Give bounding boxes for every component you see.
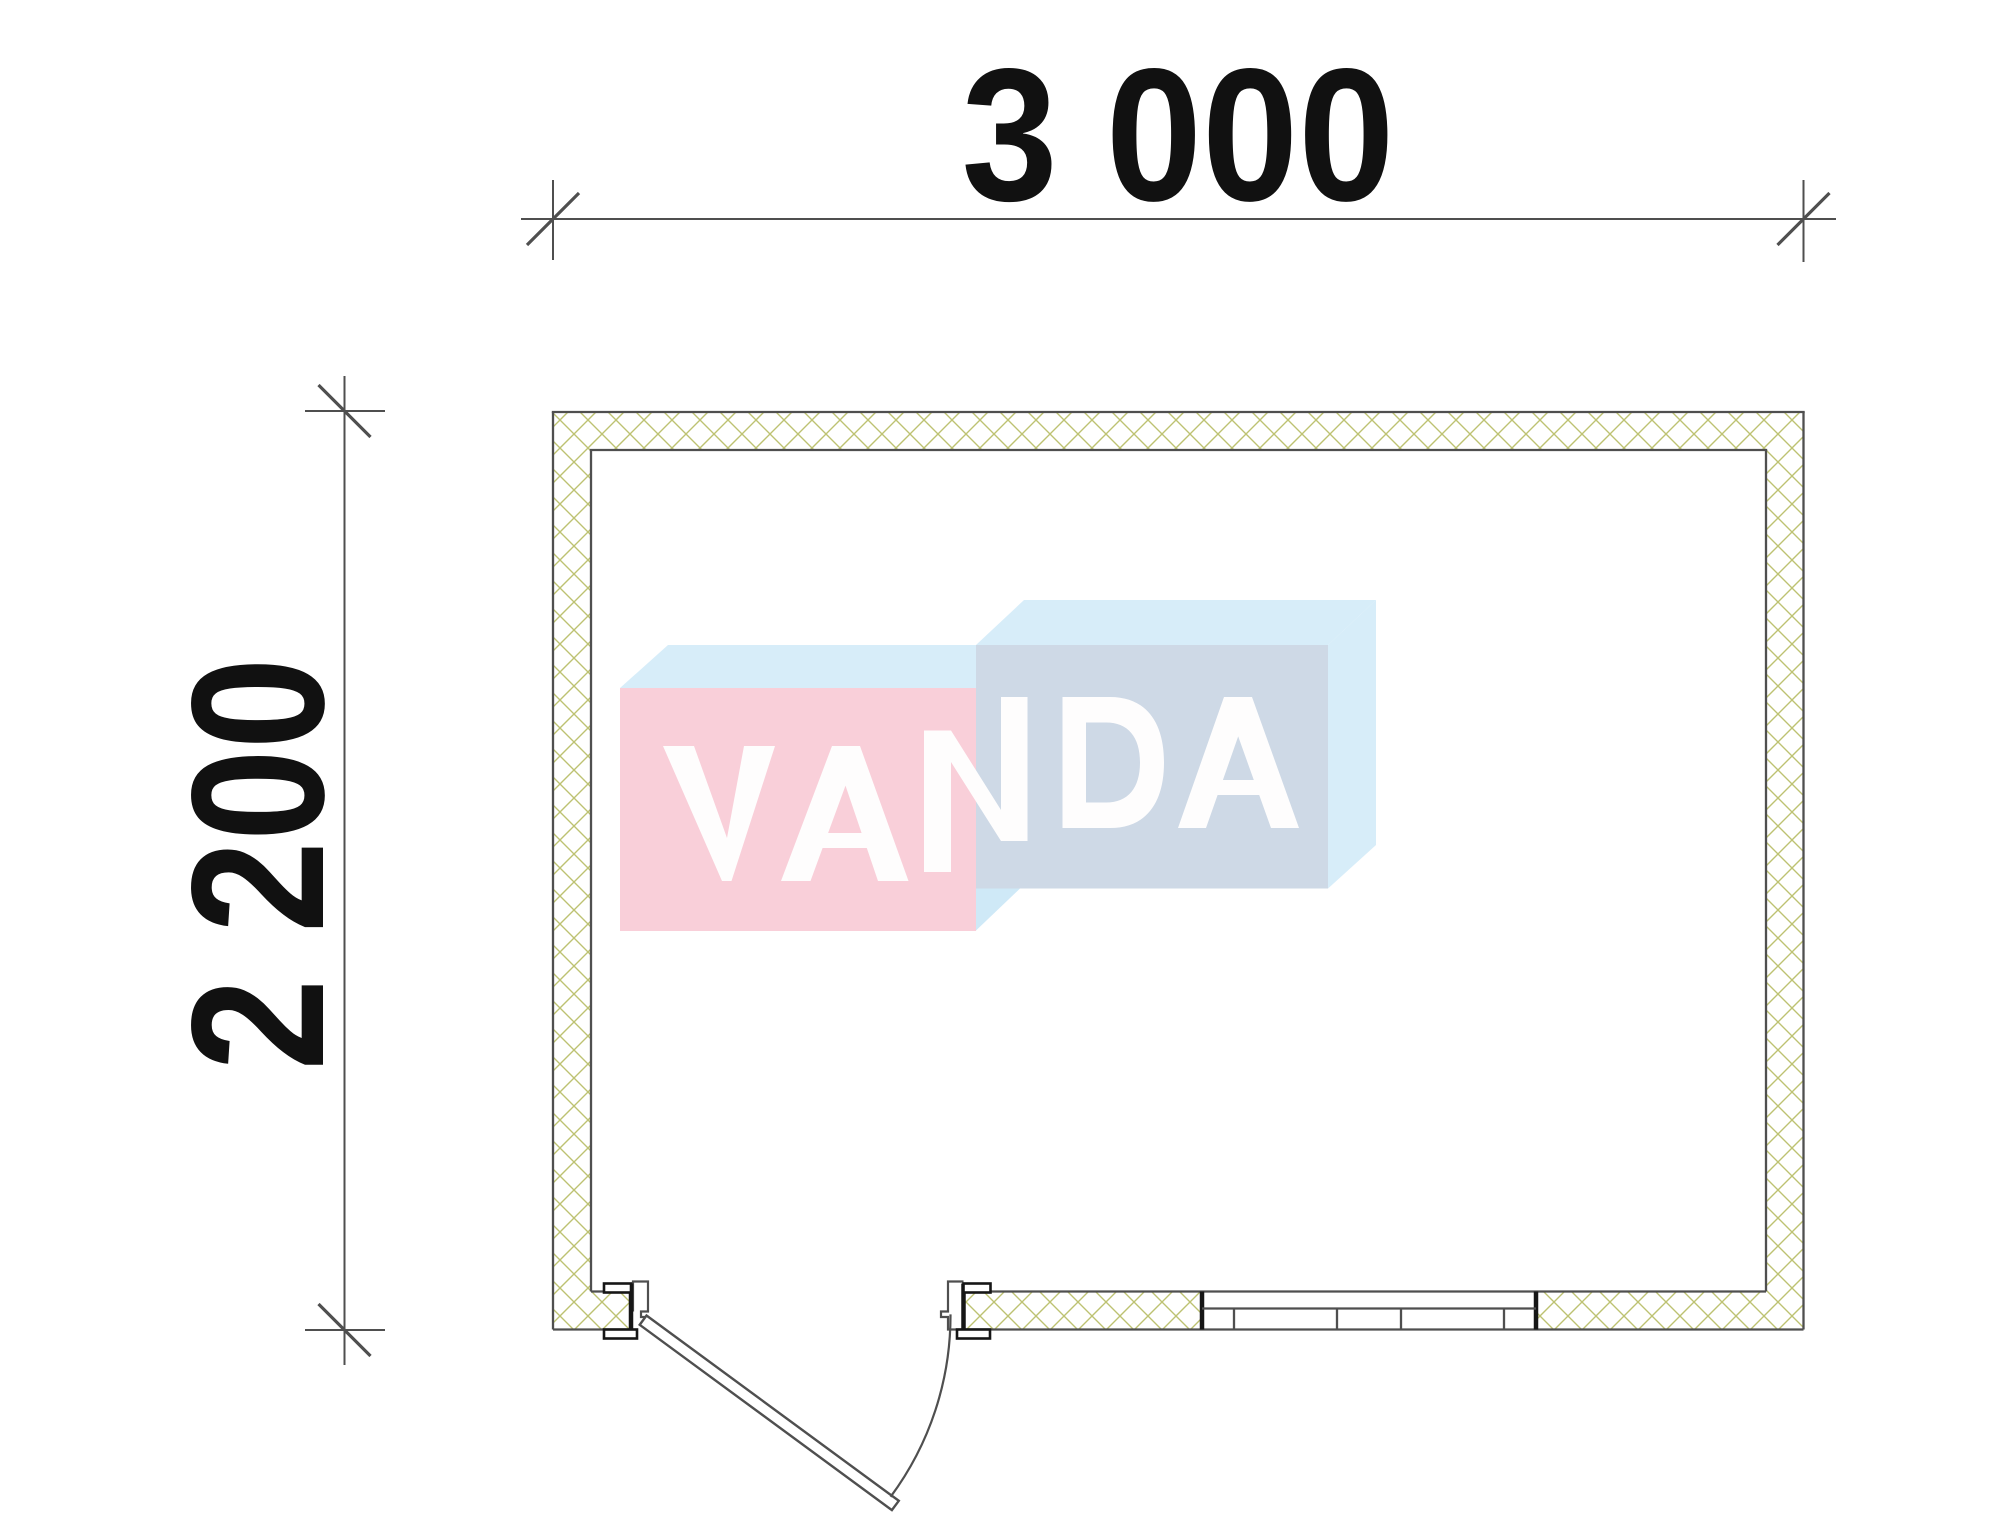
- svg-text:2 200: 2 200: [153, 658, 364, 1071]
- svg-text:3 000: 3 000: [962, 30, 1395, 241]
